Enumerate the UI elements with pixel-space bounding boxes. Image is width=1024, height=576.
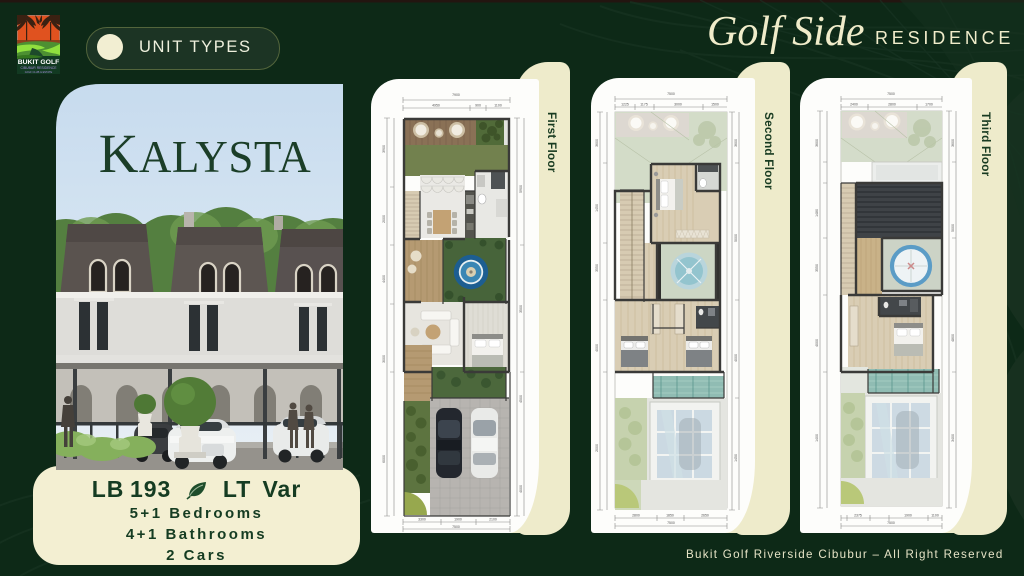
svg-text:4400: 4400 — [382, 275, 386, 283]
svg-text:3600: 3600 — [951, 139, 955, 147]
svg-text:7500: 7500 — [452, 525, 460, 529]
svg-text:1900: 1900 — [904, 514, 912, 518]
svg-text:3600: 3600 — [734, 139, 738, 147]
svg-text:3400: 3400 — [951, 434, 955, 442]
svg-text:1100: 1100 — [494, 104, 502, 108]
svg-text:4000: 4000 — [815, 339, 819, 347]
svg-text:2400: 2400 — [850, 103, 858, 107]
svg-text:BUKIT GOLF: BUKIT GOLF — [18, 59, 60, 66]
svg-text:7500: 7500 — [887, 92, 895, 96]
svg-text:3300: 3300 — [418, 518, 426, 522]
svg-text:1700: 1700 — [925, 103, 933, 107]
svg-text:CIBUBUR RESIDENCE: CIBUBUR RESIDENCE — [21, 66, 58, 70]
svg-text:4000: 4000 — [519, 485, 523, 493]
svg-text:GOLF CLUB & ESTATE: GOLF CLUB & ESTATE — [25, 70, 53, 74]
svg-text:6000: 6000 — [382, 455, 386, 463]
svg-text:5000: 5000 — [734, 234, 738, 242]
svg-text:2100: 2100 — [489, 518, 497, 522]
svg-text:3000: 3000 — [674, 103, 682, 107]
svg-text:3500: 3500 — [519, 305, 523, 313]
svg-text:3550: 3550 — [815, 264, 819, 272]
svg-text:1400: 1400 — [815, 434, 819, 442]
svg-text:3600: 3600 — [595, 139, 599, 147]
svg-text:2800: 2800 — [888, 103, 896, 107]
svg-text:1100: 1100 — [931, 514, 939, 518]
svg-text:3000: 3000 — [382, 355, 386, 363]
svg-text:1175: 1175 — [640, 103, 648, 107]
svg-text:4800: 4800 — [951, 334, 955, 342]
svg-text:KALYSTA: KALYSTA — [99, 123, 312, 184]
svg-text:2650: 2650 — [701, 514, 709, 518]
svg-text:1480: 1480 — [815, 209, 819, 217]
svg-text:3550: 3550 — [595, 264, 599, 272]
svg-text:7500: 7500 — [667, 521, 675, 525]
svg-text:5000: 5000 — [951, 224, 955, 232]
svg-text:2800: 2800 — [632, 514, 640, 518]
svg-text:1225: 1225 — [621, 103, 629, 107]
svg-text:1500: 1500 — [711, 103, 719, 107]
svg-text:2000: 2000 — [382, 215, 386, 223]
svg-text:7900: 7900 — [452, 93, 460, 97]
svg-text:4000: 4000 — [734, 354, 738, 362]
svg-text:7500: 7500 — [887, 521, 895, 525]
svg-text:4500: 4500 — [519, 395, 523, 403]
svg-text:5900: 5900 — [519, 185, 523, 193]
svg-text:1450: 1450 — [595, 204, 599, 212]
svg-text:4000: 4000 — [595, 344, 599, 352]
svg-text:7500: 7500 — [667, 92, 675, 96]
svg-text:2375: 2375 — [854, 514, 862, 518]
svg-text:1450: 1450 — [734, 454, 738, 462]
svg-text:900: 900 — [475, 104, 481, 108]
svg-text:1900: 1900 — [454, 518, 462, 522]
svg-text:3900: 3900 — [382, 145, 386, 153]
svg-text:2000: 2000 — [595, 444, 599, 452]
svg-text:1850: 1850 — [666, 514, 674, 518]
svg-text:4950: 4950 — [432, 104, 440, 108]
svg-text:3600: 3600 — [815, 139, 819, 147]
